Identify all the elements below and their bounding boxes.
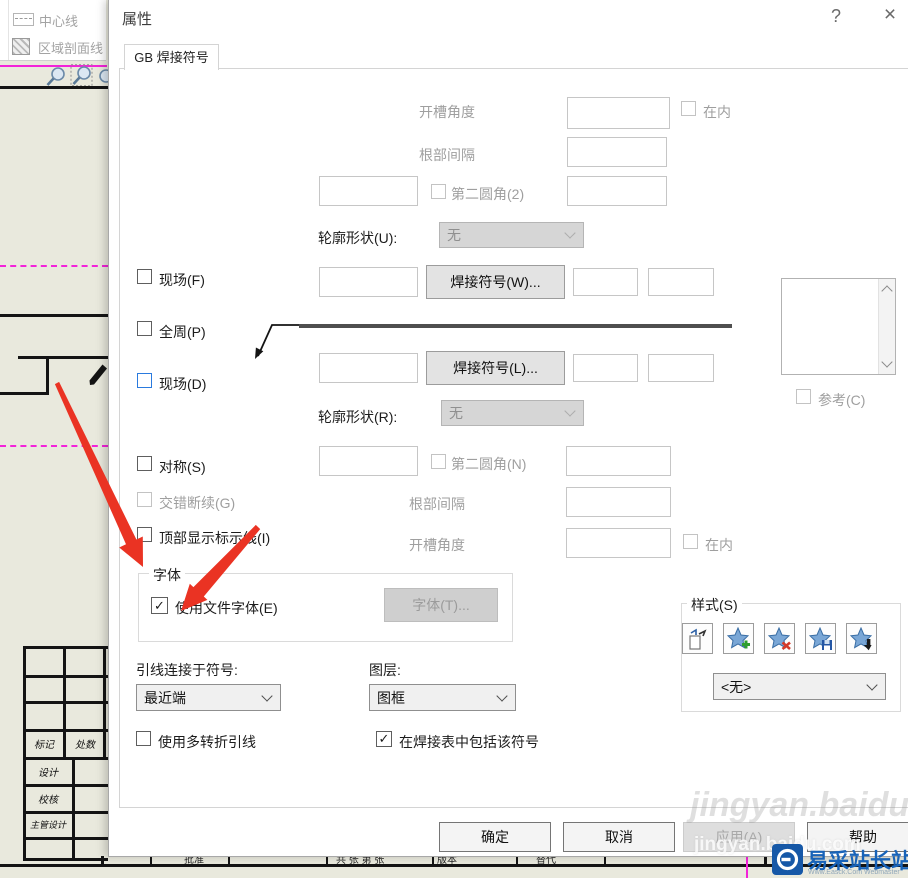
chevron-down-icon <box>564 227 575 238</box>
fillet-radius-2-input[interactable] <box>319 176 418 206</box>
drawing-line <box>0 86 108 89</box>
check-icon: ✓ <box>154 598 165 613</box>
weld-symbol-l-button[interactable]: 焊接符号(L)... <box>426 351 565 385</box>
dialog-title: 属性 <box>122 8 152 29</box>
style-group-label: 样式(S) <box>687 595 742 615</box>
contour-u-value: 无 <box>447 225 461 245</box>
title-block-cell: 标记 <box>34 736 54 751</box>
drawing-line <box>0 314 108 317</box>
include-in-weld-table-label: 在焊接表中包括该符号 <box>399 732 539 752</box>
fillet-size-2-input[interactable] <box>567 176 667 206</box>
leader-anchor-label: 引线连接于符号: <box>136 660 238 680</box>
symmetric-s-label: 对称(S) <box>159 457 206 477</box>
include-in-weld-table-checkbox[interactable]: ✓ <box>376 731 392 747</box>
top-id-line-i-label: 顶部显示标示线(I) <box>159 528 270 548</box>
layer-label: 图层: <box>369 660 401 680</box>
stagger-g-label: 交错断续(G) <box>159 493 235 513</box>
field-f-checkbox[interactable] <box>137 269 152 284</box>
weld-l-aux1-input[interactable] <box>573 354 638 382</box>
reference-c-label: 参考(C) <box>818 390 865 410</box>
root-gap-top-label: 根部间隔 <box>419 145 475 165</box>
app-background: 中心线 区域剖面线 标记 <box>0 0 908 878</box>
chevron-down-icon <box>866 679 877 690</box>
title-block-cell: 主管设计 <box>30 818 66 831</box>
root-gap-top-input[interactable] <box>567 137 667 167</box>
area-hatch-icon <box>12 38 30 55</box>
multi-jog-leader-label: 使用多转折引线 <box>158 732 256 752</box>
cancel-button[interactable]: 取消 <box>563 822 675 852</box>
style-select[interactable]: <无> <box>713 673 886 700</box>
reference-c-checkbox[interactable] <box>796 389 811 404</box>
weld-size-w-input[interactable] <box>319 267 418 297</box>
properties-dialog: 属性 ? × GB 焊接符号 开槽角度 在内 根部间隔 第二圆角(2) 轮廓形状… <box>108 0 908 857</box>
magnifier-icon <box>78 67 90 79</box>
groove-angle-top-input[interactable] <box>567 97 670 129</box>
inside-bottom-checkbox[interactable] <box>683 534 698 549</box>
help-icon[interactable]: ? <box>821 5 851 29</box>
root-gap-bottom-input[interactable] <box>566 487 671 517</box>
scrollbar[interactable] <box>878 279 895 374</box>
scroll-up-icon[interactable] <box>881 285 892 296</box>
groove-angle-bottom-input[interactable] <box>566 528 671 558</box>
magnifier-icon <box>52 68 64 80</box>
apply-default-style-button[interactable] <box>682 623 713 654</box>
dashed-centerline <box>0 265 108 267</box>
title-block-cell: 处数 <box>75 736 95 751</box>
centerline-icon <box>13 13 34 26</box>
weld-reference-line <box>299 324 732 328</box>
style-value: <无> <box>721 677 751 697</box>
menu-gutter <box>8 0 9 60</box>
close-icon[interactable]: × <box>875 4 905 28</box>
scroll-down-icon[interactable] <box>881 356 892 367</box>
delete-style-button[interactable] <box>764 623 795 654</box>
dashed-centerline <box>0 445 108 447</box>
save-style-button[interactable] <box>805 623 836 654</box>
add-style-icon <box>727 627 751 651</box>
ok-button[interactable]: 确定 <box>439 822 551 852</box>
inside-bottom-label: 在内 <box>705 535 733 555</box>
contour-r-label: 轮廓形状(R): <box>318 407 397 427</box>
field-d-label: 现场(D) <box>159 374 206 394</box>
use-document-font-label: 使用文件字体(E) <box>175 598 278 618</box>
second-fillet-n-checkbox[interactable] <box>431 454 446 469</box>
symmetric-s-checkbox[interactable] <box>137 456 152 471</box>
add-style-button[interactable] <box>723 623 754 654</box>
contour-r-select[interactable]: 无 <box>441 400 584 426</box>
field-f-label: 现场(F) <box>159 270 205 290</box>
field-d-checkbox[interactable] <box>137 373 152 388</box>
chevron-down-icon <box>564 405 575 416</box>
chevron-down-icon <box>496 690 507 701</box>
font-button[interactable]: 字体(T)... <box>384 588 498 622</box>
symbol-preview-listbox[interactable] <box>781 278 896 375</box>
default-style-icon <box>687 628 709 650</box>
all-around-p-label: 全周(P) <box>159 322 206 342</box>
context-menu-panel: 中心线 区域剖面线 <box>0 0 106 61</box>
weld-symbol-w-button[interactable]: 焊接符号(W)... <box>426 265 565 299</box>
easck-logo-icon <box>772 844 803 875</box>
fillet-radius-n-input[interactable] <box>319 446 418 476</box>
delete-style-icon <box>768 627 792 651</box>
groove-angle-bottom-label: 开槽角度 <box>409 535 465 555</box>
weld-size-l-input[interactable] <box>319 353 418 383</box>
fillet-size-n-input[interactable] <box>566 446 671 476</box>
menu-item-label: 中心线 <box>39 11 78 30</box>
stagger-g-checkbox[interactable] <box>137 492 152 507</box>
second-fillet-n-label: 第二圆角(N) <box>451 454 526 474</box>
drawing-line <box>46 356 49 395</box>
contour-u-label: 轮廓形状(U): <box>318 228 397 248</box>
tab-gb-weld-symbol[interactable]: GB 焊接符号 <box>124 44 219 70</box>
load-style-icon <box>850 627 874 651</box>
title-block-cell: 设计 <box>38 764 58 779</box>
weld-leader-line <box>245 316 309 366</box>
all-around-p-checkbox[interactable] <box>137 321 152 336</box>
second-fillet-2-checkbox[interactable] <box>431 184 446 199</box>
drawing-line <box>18 356 108 359</box>
watermark-site-subtitle: Www.Easck.Com Webmaster <box>808 869 900 876</box>
root-gap-bottom-label: 根部间隔 <box>409 494 465 514</box>
multi-jog-leader-checkbox[interactable] <box>136 731 151 746</box>
watermark-text-faded: jingyan.baidu.com <box>690 786 908 825</box>
layer-value: 图框 <box>377 688 405 708</box>
use-document-font-checkbox[interactable]: ✓ <box>151 597 168 614</box>
inside-top-checkbox[interactable] <box>681 101 696 116</box>
font-group-label: 字体 <box>149 565 185 585</box>
chevron-down-icon <box>261 690 272 701</box>
weld-w-aux1-input[interactable] <box>573 268 638 296</box>
title-block-cell: 校核 <box>38 791 58 806</box>
check-icon: ✓ <box>379 731 390 746</box>
weld-w-aux2-input[interactable] <box>648 268 714 296</box>
drawing-line <box>0 392 48 395</box>
magnifier-icon <box>100 70 108 82</box>
groove-angle-top-label: 开槽角度 <box>419 102 475 122</box>
inside-top-label: 在内 <box>703 102 731 122</box>
contour-u-select[interactable]: 无 <box>439 222 584 248</box>
weld-l-aux2-input[interactable] <box>648 354 714 382</box>
pencil-cursor-icon <box>88 362 110 386</box>
load-style-button[interactable] <box>846 623 877 654</box>
top-id-line-i-checkbox[interactable] <box>137 527 152 542</box>
second-fillet-2-label: 第二圆角(2) <box>451 184 524 204</box>
layer-select[interactable]: 图框 <box>369 684 516 711</box>
menu-item-label: 区域剖面线 <box>38 38 103 57</box>
leader-anchor-value: 最近端 <box>144 688 186 708</box>
save-style-icon <box>809 627 833 651</box>
leader-anchor-select[interactable]: 最近端 <box>136 684 281 711</box>
contour-r-value: 无 <box>449 403 463 423</box>
